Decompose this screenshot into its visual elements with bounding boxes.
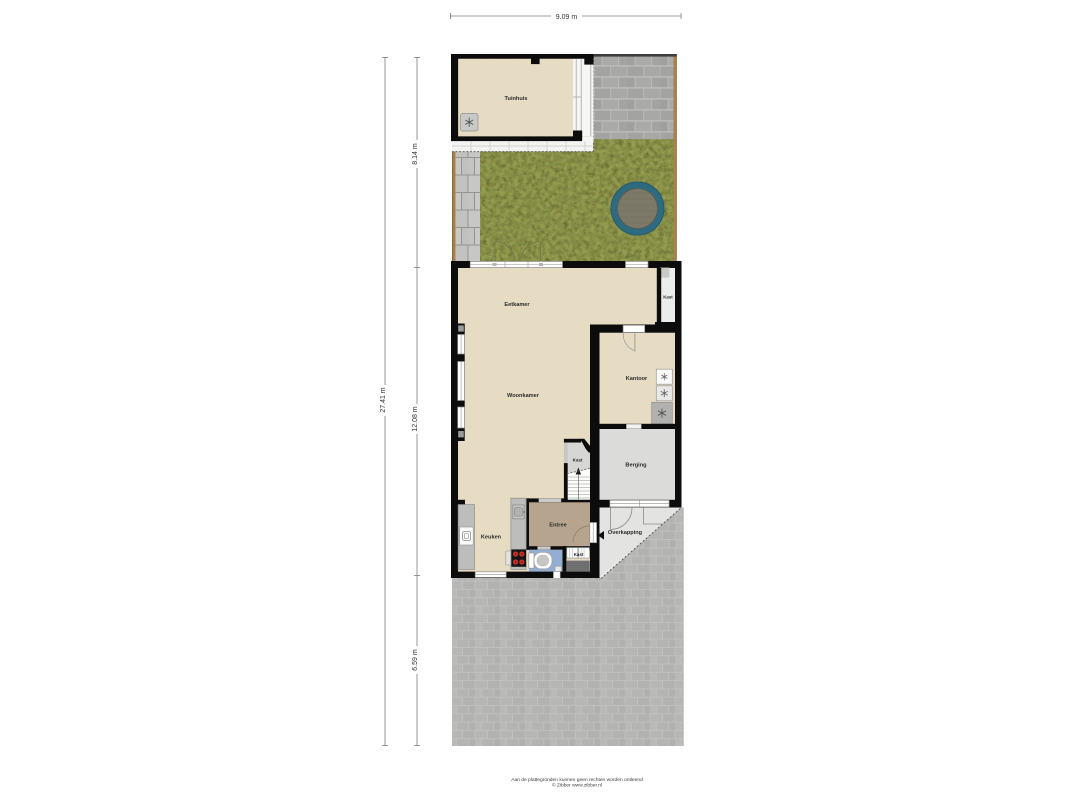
svg-text:Keuken: Keuken [481,535,502,541]
svg-text:Woonkamer: Woonkamer [507,393,540,399]
svg-text:Tuinhuis: Tuinhuis [505,96,528,102]
svg-text:Kast: Kast [574,552,584,557]
svg-text:Eetkamer: Eetkamer [504,302,530,308]
svg-text:Overkapping: Overkapping [608,530,643,536]
svg-text:Kast: Kast [573,458,583,463]
svg-text:27.41 m: 27.41 m [380,387,387,412]
svg-text:9.09 m: 9.09 m [556,14,578,21]
svg-text:Entree: Entree [549,523,566,529]
svg-text:12.08 m: 12.08 m [412,406,419,431]
svg-text:Kantoor: Kantoor [626,376,648,382]
svg-text:8.14 m: 8.14 m [412,143,419,165]
svg-text:Aan de plattegronden kunnen ge: Aan de plattegronden kunnen geen rechten… [511,777,643,783]
svg-text:Kast: Kast [663,295,673,300]
svg-text:© Zibber www.zibber.nl: © Zibber www.zibber.nl [552,782,602,789]
svg-text:6.59 m: 6.59 m [412,649,419,671]
svg-text:Berging: Berging [625,463,647,469]
